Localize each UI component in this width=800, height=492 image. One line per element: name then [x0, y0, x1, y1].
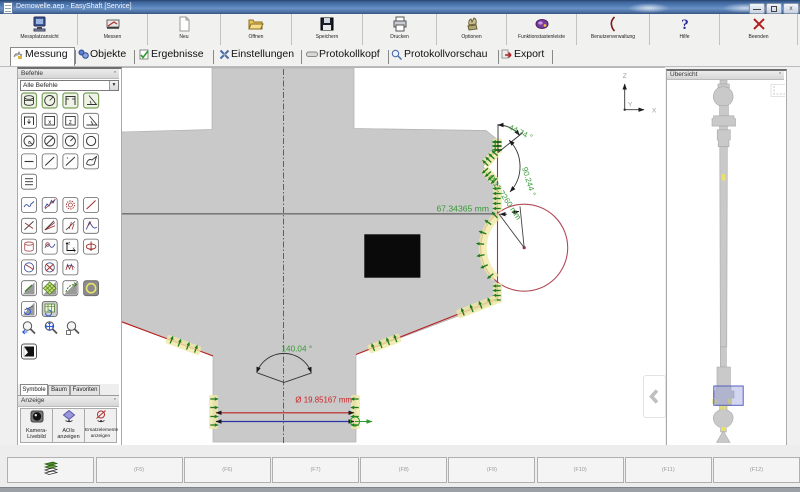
svg-text:Y: Y — [628, 102, 633, 109]
svg-text:44.74 °: 44.74 ° — [507, 123, 534, 142]
svg-text:X: X — [652, 108, 657, 115]
svg-text:z: z — [69, 120, 72, 126]
svg-text:x: x — [48, 120, 51, 126]
svg-text:140.04 °: 140.04 ° — [282, 345, 313, 354]
svg-text:?: ? — [681, 17, 689, 32]
svg-text:67.34365 mm: 67.34365 mm — [436, 204, 489, 214]
svg-text:90.244 °: 90.244 ° — [520, 166, 537, 197]
svg-text:Z: Z — [623, 73, 627, 80]
svg-text:Ø 19.85167 mm: Ø 19.85167 mm — [295, 396, 352, 405]
